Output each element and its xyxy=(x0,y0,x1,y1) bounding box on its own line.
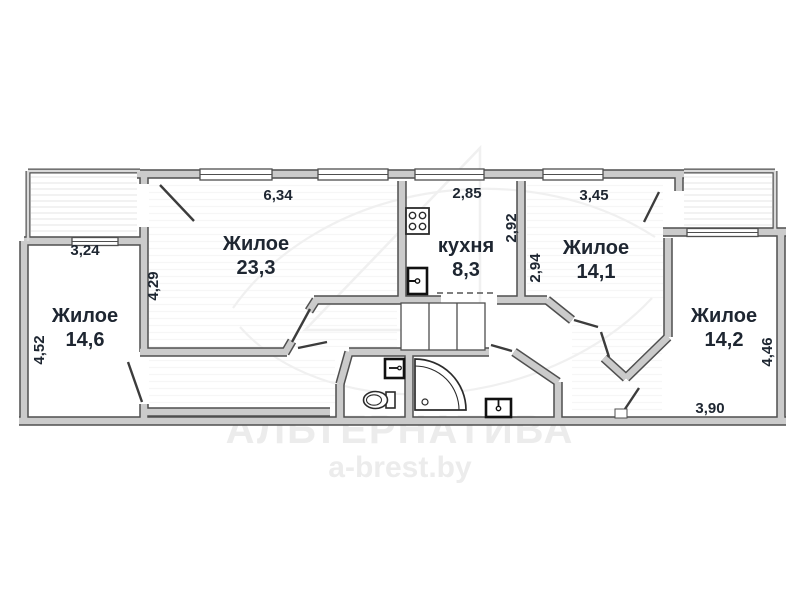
kitchen-area: 8,3 xyxy=(452,259,480,281)
kitchen-label: кухня xyxy=(438,235,494,257)
room-142-area: 14,2 xyxy=(705,329,744,351)
room-146-area: 14,6 xyxy=(66,329,105,351)
washbasin-icon xyxy=(385,359,404,378)
closet-icon xyxy=(401,303,485,350)
window-icon xyxy=(687,229,758,237)
window-icon xyxy=(200,169,272,180)
room-142-label: Жилое xyxy=(690,305,757,327)
room-233-label: Жилое xyxy=(222,233,289,255)
dim-room233-width: 6,34 xyxy=(263,187,293,204)
sink-icon xyxy=(408,268,427,294)
toilet-icon xyxy=(364,392,396,409)
dim-room142-width: 3,90 xyxy=(695,400,724,417)
window-icon xyxy=(415,169,484,180)
dim-room146-width: 3,24 xyxy=(70,242,100,259)
room-146-label: Жилое xyxy=(51,305,118,327)
dim-room142-depth: 4,46 xyxy=(759,337,776,366)
dim-kitchen-width: 2,85 xyxy=(452,185,481,202)
dim-room141-width: 3,45 xyxy=(579,187,608,204)
room-141-label: Жилое xyxy=(562,237,629,259)
room-141-area: 14,1 xyxy=(577,261,616,283)
floor-plan-drawing: АЛЬТЕРНАТИВА a-brest.by xyxy=(0,0,800,599)
window-icon xyxy=(318,169,388,180)
floor-plan-page: АЛЬТЕРНАТИВА a-brest.by xyxy=(0,0,800,599)
washbasin-icon xyxy=(486,399,511,417)
stove-icon xyxy=(406,208,429,234)
dim-room233-depth: 4,29 xyxy=(145,271,162,300)
room-233-area: 23,3 xyxy=(237,257,276,279)
window-icon xyxy=(543,169,603,180)
entry-threshold xyxy=(615,409,627,418)
dim-room141-depth: 2,94 xyxy=(527,253,544,283)
watermark-site-text: a-brest.by xyxy=(328,451,472,484)
dim-kitchen-depth: 2,92 xyxy=(503,213,520,242)
dim-room146-depth: 4,52 xyxy=(31,335,48,364)
